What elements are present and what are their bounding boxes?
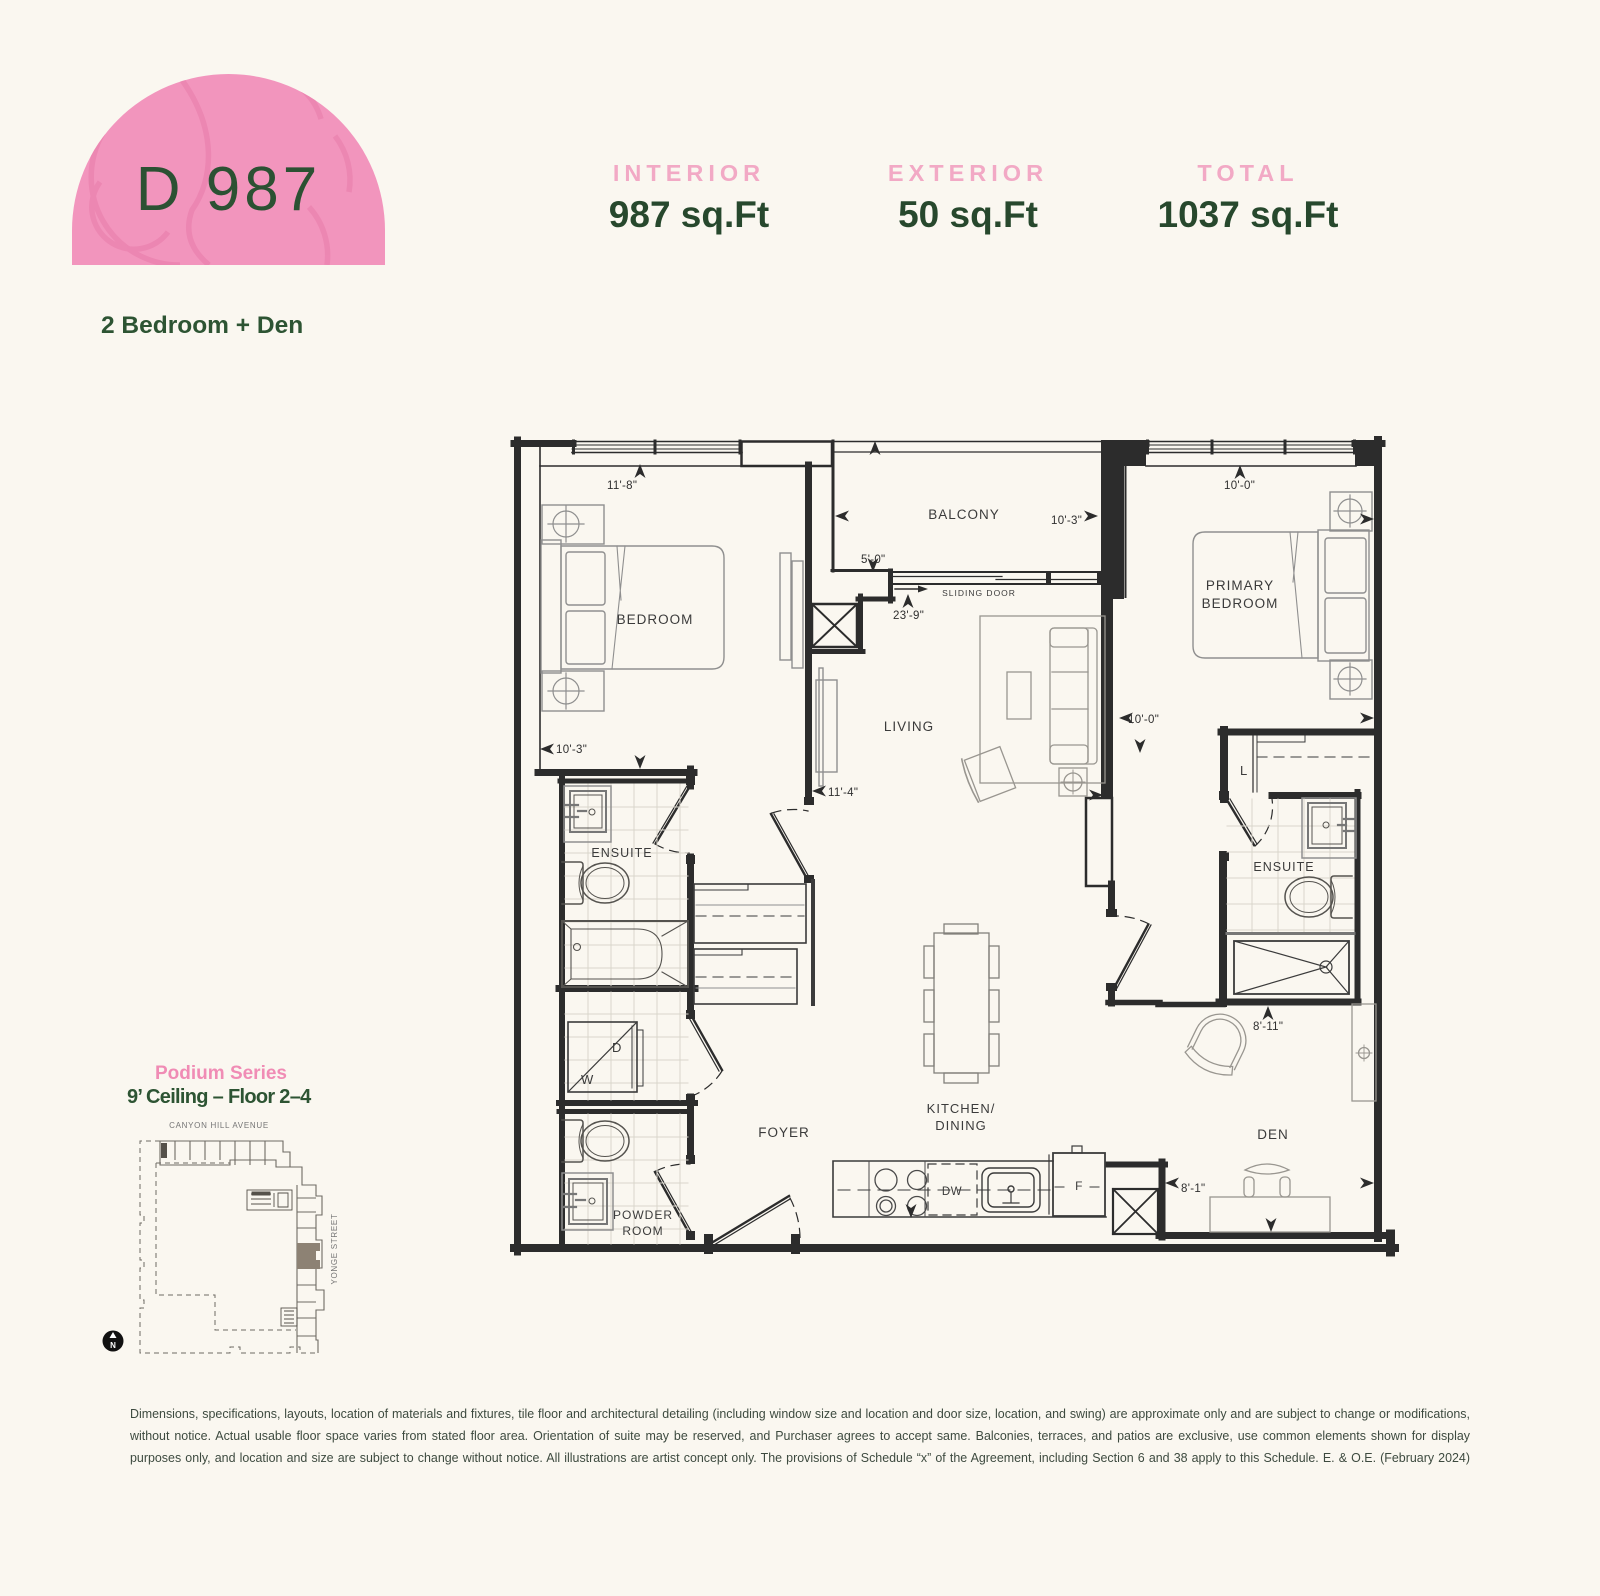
- svg-text:10'-0": 10'-0": [1128, 714, 1159, 726]
- svg-text:ENSUITE: ENSUITE: [1253, 860, 1314, 874]
- svg-text:W: W: [581, 1072, 594, 1087]
- svg-text:ENSUITE: ENSUITE: [591, 846, 652, 860]
- svg-text:BEDROOM: BEDROOM: [1202, 596, 1279, 611]
- svg-text:DW: DW: [942, 1186, 962, 1198]
- svg-text:10'-3": 10'-3": [556, 744, 587, 756]
- svg-text:10'-3": 10'-3": [1051, 515, 1082, 527]
- svg-text:ROOM: ROOM: [622, 1224, 663, 1238]
- svg-text:PRIMARY: PRIMARY: [1206, 578, 1274, 593]
- svg-text:POWDER: POWDER: [613, 1208, 673, 1222]
- svg-text:F: F: [1075, 1179, 1083, 1193]
- svg-text:DEN: DEN: [1257, 1127, 1289, 1142]
- svg-text:10'-0": 10'-0": [1224, 480, 1255, 492]
- svg-text:N: N: [110, 1341, 116, 1350]
- svg-text:KITCHEN/: KITCHEN/: [927, 1101, 996, 1116]
- svg-text:8'-1": 8'-1": [1181, 1183, 1205, 1195]
- svg-text:8'-11": 8'-11": [1253, 1021, 1283, 1033]
- svg-text:5'-0": 5'-0": [861, 554, 885, 566]
- svg-text:11'-4": 11'-4": [828, 787, 858, 799]
- svg-text:FOYER: FOYER: [758, 1125, 810, 1140]
- svg-text:D: D: [612, 1040, 622, 1055]
- svg-text:BEDROOM: BEDROOM: [617, 612, 694, 627]
- svg-text:SLIDING DOOR: SLIDING DOOR: [942, 588, 1016, 598]
- svg-text:LIVING: LIVING: [884, 719, 934, 734]
- svg-text:YONGE STREET: YONGE STREET: [330, 1213, 339, 1284]
- svg-text:BALCONY: BALCONY: [928, 507, 1000, 522]
- svg-text:L: L: [1240, 763, 1248, 778]
- svg-text:DINING: DINING: [935, 1118, 987, 1133]
- svg-text:11'-8": 11'-8": [607, 480, 637, 492]
- svg-text:CANYON HILL AVENUE: CANYON HILL AVENUE: [169, 1121, 269, 1130]
- svg-text:23'-9": 23'-9": [893, 610, 924, 622]
